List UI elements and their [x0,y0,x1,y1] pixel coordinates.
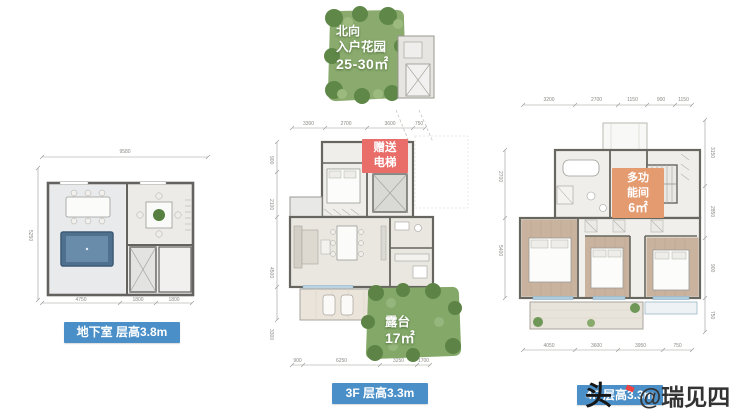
dim-label: 3300 [292,121,325,127]
dim-label: 3250 [380,358,417,364]
dim-label: 9580 [42,149,208,155]
floor3-elevator-shaft [373,174,407,212]
dim-label: 2700 [325,121,367,127]
toutiao-logo: 头条 [585,378,637,416]
dim-label: 750 [663,343,692,349]
dim-label: 1800 [120,297,156,303]
floor4-right-bedroom [647,238,699,297]
garden-area-tag: 北向 入户花园 25-30㎡ [336,24,416,73]
dim-label: 900 [708,238,715,298]
dim-label: 6250 [303,358,380,364]
multiroom-tag-line1: 多功 [627,171,649,186]
dim-label: 2700 [575,97,618,103]
floor3-bed [327,169,360,203]
dim-label: 4500 [267,231,274,314]
ghost-structure-outline [415,136,468,208]
dim-label: 2100 [267,178,274,232]
floor4-roof-void [603,123,647,150]
floor4-top-dims: 3200 2700 1150 900 1150 [523,97,692,103]
dim-label: 3600 [367,121,413,127]
floor3-dining-table [331,226,364,260]
dim-label: 2850 [708,186,715,238]
toutiao-watermark: 头条 @瑞见四川 [585,378,753,416]
watermark-handle: @瑞见四川 [639,380,753,416]
dim-label: 5400 [496,204,503,298]
dim-label: 4750 [42,297,120,303]
basement-floorplan-drawing [30,140,215,315]
basement-left-dims: 5250 [26,172,33,300]
floor4-right-dims: 3150 2850 900 750 [708,120,715,332]
elevator-tag-line2: 电梯 [374,156,397,171]
floor4-bay-window [645,302,697,314]
dim-label: 900 [292,358,303,364]
dim-label: 1150 [675,97,692,103]
elevator-tag-line1: 赠送 [374,141,397,156]
floor3-side-ledge [290,197,322,217]
dim-label: 2700 [496,150,503,204]
dining-table [66,190,110,224]
dim-label: 3200 [523,97,575,103]
floor3-top-dims: 3300 2700 3600 750 [292,121,425,127]
floor3-bottom-dims: 900 6250 3250 1700 [292,358,430,364]
basement-bottom-dims: 4750 1800 1800 [42,297,192,303]
floor4-master-bedroom [522,220,578,297]
garden-tag-line1: 北向 [336,24,416,39]
floor4-wardrobes [585,220,663,232]
basement-top-dims: 9580 [42,149,208,155]
free-elevator-tag: 赠送 电梯 [362,139,408,173]
dim-label: 3950 [618,343,663,349]
floor4-floorplan-drawing [493,86,728,366]
basement-stair-room [159,247,191,292]
floor4-middle-bedroom [585,236,630,297]
multifunction-room-tag: 多功 能间 6㎡ [612,168,664,218]
dim-label: 900 [267,142,274,178]
floorplan-sheet: 9580 4750 1800 1800 5250 地下室 层高3.8m 北向 入… [0,0,753,416]
multiroom-tag-line2: 能间 [627,186,649,201]
floor3-floor-tag: 3F 层高3.3m [332,383,428,404]
floor3-left-dims: 900 2100 4500 3300 [267,142,274,354]
basement-floor-tag: 地下室 层高3.8m [64,322,180,343]
billiard-table [61,232,113,266]
terrace-tag-line1: 露台 [385,315,427,330]
basement-elevator-shaft [130,247,156,292]
multiroom-tag-line3: 6㎡ [628,201,647,216]
floor3-tv-cabinet [381,226,386,260]
dim-label: 1700 [417,358,430,364]
floor4-balcony [530,302,643,329]
terrace-tag-line2: 17㎡ [385,330,427,347]
floor4-bottom-dims: 4050 3600 3950 750 [523,343,692,349]
floor3-window [303,285,353,288]
floor4-left-dims: 2700 5400 [496,150,503,298]
dim-label: 5250 [26,172,33,300]
dim-label: 4050 [523,343,575,349]
dim-label: 3300 [267,315,274,354]
garden-tag-line3: 25-30㎡ [336,55,416,73]
dim-label: 750 [413,121,425,127]
dim-label: 750 [708,298,715,332]
garden-tag-line2: 入户花园 [336,39,416,55]
dim-label: 3600 [575,343,618,349]
dim-label: 900 [647,97,675,103]
terrace-area-tag: 露台 17㎡ [385,315,427,347]
dim-label: 1800 [156,297,192,303]
dim-label: 1150 [618,97,647,103]
floor4-windows [533,296,689,299]
dim-label: 3150 [708,120,715,186]
